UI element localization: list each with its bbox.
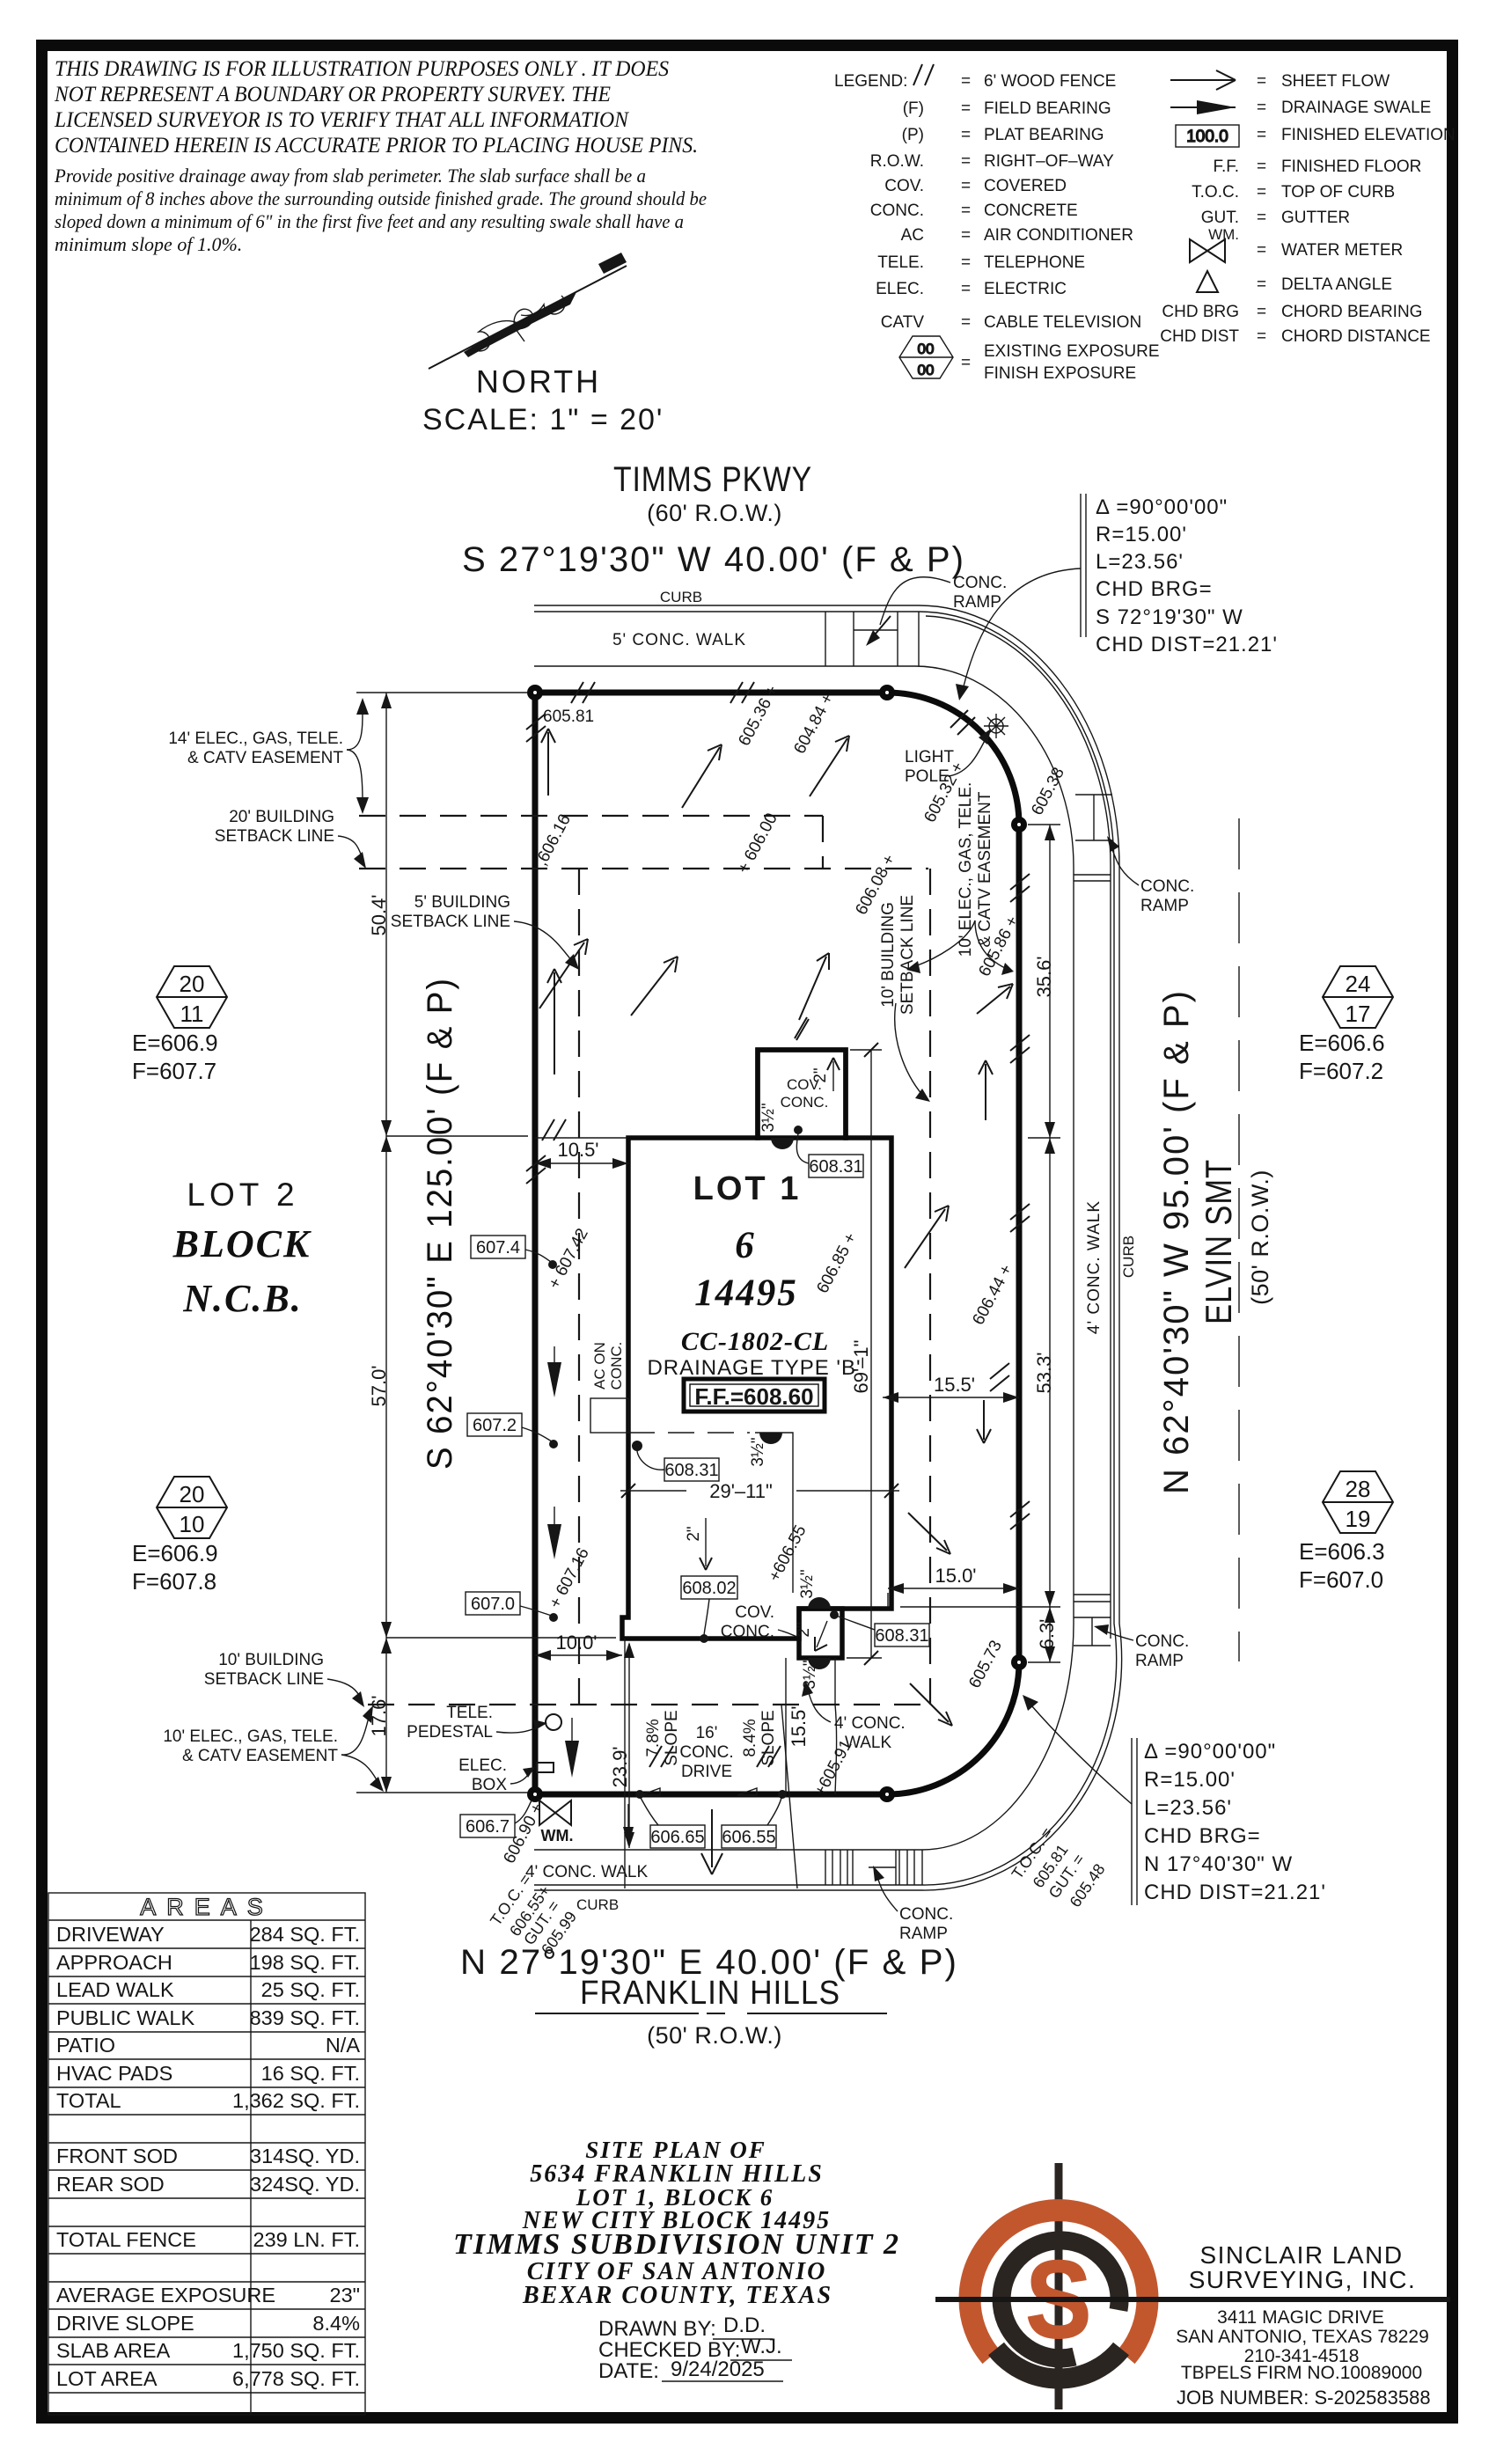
svg-text:4' CONC.: 4' CONC. bbox=[834, 1714, 906, 1733]
svg-text:F=607.7: F=607.7 bbox=[132, 1058, 216, 1084]
svg-text:=: = bbox=[961, 126, 971, 144]
svg-text:8.4%: 8.4% bbox=[312, 2312, 360, 2335]
svg-text:16 SQ. FT.: 16 SQ. FT. bbox=[261, 2062, 360, 2085]
svg-text:(P): (P) bbox=[902, 126, 924, 144]
svg-text:15.5': 15.5' bbox=[788, 1705, 810, 1747]
svg-text:SURVEYING, INC.: SURVEYING, INC. bbox=[1189, 2266, 1416, 2293]
svg-text:SLAB AREA: SLAB AREA bbox=[56, 2339, 171, 2362]
svg-text:CHD BRG: CHD BRG bbox=[1162, 303, 1239, 321]
svg-text:=: = bbox=[961, 99, 971, 118]
svg-text:=: = bbox=[1257, 183, 1266, 202]
svg-text:TOP OF CURB: TOP OF CURB bbox=[1281, 183, 1395, 202]
svg-text:DELTA ANGLE: DELTA ANGLE bbox=[1281, 275, 1392, 294]
svg-text:CATV: CATV bbox=[881, 313, 925, 332]
svg-text:CONC.: CONC. bbox=[781, 1094, 829, 1111]
svg-text:=: = bbox=[1257, 241, 1266, 260]
svg-text:WM.: WM. bbox=[541, 1827, 574, 1844]
svg-text:W.J.: W.J. bbox=[741, 2335, 782, 2358]
svg-text:10.0': 10.0' bbox=[555, 1632, 597, 1654]
svg-text:23.9': 23.9' bbox=[609, 1746, 631, 1787]
svg-text:PEDESTAL: PEDESTAL bbox=[407, 1723, 493, 1742]
svg-text:minimum of 8 inches above the: minimum of 8 inches above the surroundin… bbox=[55, 187, 707, 209]
svg-text:324SQ. YD.: 324SQ. YD. bbox=[250, 2173, 360, 2196]
svg-text:1,750 SQ. FT.: 1,750 SQ. FT. bbox=[232, 2339, 360, 2362]
svg-text:APPROACH: APPROACH bbox=[56, 1951, 172, 1974]
svg-text:3½": 3½" bbox=[798, 1569, 817, 1598]
svg-text:GUT.: GUT. bbox=[1201, 209, 1239, 227]
svg-text:69'–1": 69'–1" bbox=[850, 1340, 872, 1394]
svg-text:15.0': 15.0' bbox=[935, 1565, 976, 1587]
svg-text:3½": 3½" bbox=[801, 1660, 819, 1689]
svg-text:SLOPE: SLOPE bbox=[759, 1710, 778, 1765]
svg-text:607.2: 607.2 bbox=[473, 1416, 517, 1435]
svg-text:TOTAL: TOTAL bbox=[56, 2089, 121, 2112]
svg-text:RAMP: RAMP bbox=[953, 593, 1001, 612]
svg-text:SCALE: 1" = 20': SCALE: 1" = 20' bbox=[422, 403, 664, 436]
svg-text:(50' R.O.W.): (50' R.O.W.) bbox=[647, 2022, 782, 2049]
svg-text:LEAD WALK: LEAD WALK bbox=[56, 1978, 174, 2001]
svg-text:CONC.: CONC. bbox=[870, 202, 924, 220]
svg-text:SETBACK LINE: SETBACK LINE bbox=[215, 827, 334, 846]
svg-text:2": 2" bbox=[685, 1526, 703, 1541]
svg-text:CONC.: CONC. bbox=[1135, 1632, 1189, 1651]
svg-text:N 17°40'30" W: N 17°40'30" W bbox=[1144, 1852, 1293, 1876]
svg-text:608.02: 608.02 bbox=[682, 1579, 736, 1598]
svg-text:57.0': 57.0' bbox=[368, 1365, 390, 1406]
svg-text:CONC.: CONC. bbox=[679, 1743, 733, 1762]
svg-text:RAMP: RAMP bbox=[899, 1925, 948, 1943]
svg-text:TELE.: TELE. bbox=[446, 1704, 493, 1722]
svg-text:(50' R.O.W.): (50' R.O.W.) bbox=[1247, 1170, 1273, 1305]
svg-text:NOT REPRESENT A BOUNDARY OR PR: NOT REPRESENT A BOUNDARY OR PROPERTY SUR… bbox=[54, 81, 611, 106]
svg-text:=: = bbox=[961, 72, 971, 91]
svg-text:D.D.: D.D. bbox=[723, 2314, 766, 2337]
svg-text:CONCRETE: CONCRETE bbox=[984, 202, 1078, 220]
svg-text:DRAINAGE TYPE 'B': DRAINAGE TYPE 'B' bbox=[647, 1356, 861, 1380]
svg-text:=: = bbox=[1257, 327, 1266, 346]
svg-text:7.8%: 7.8% bbox=[644, 1719, 663, 1756]
svg-text:DRIVE SLOPE: DRIVE SLOPE bbox=[56, 2312, 194, 2335]
svg-text:JOB NUMBER: S-202583588: JOB NUMBER: S-202583588 bbox=[1177, 2387, 1431, 2409]
svg-text:17: 17 bbox=[1346, 1001, 1371, 1027]
svg-text:N 62°40'30" W 95.00' (F & P): N 62°40'30" W 95.00' (F & P) bbox=[1157, 989, 1196, 1494]
svg-text:EXISTING EXPOSURE: EXISTING EXPOSURE bbox=[984, 342, 1160, 361]
svg-text:10' BUILDING: 10' BUILDING bbox=[879, 902, 898, 1008]
svg-text:607.0: 607.0 bbox=[471, 1595, 515, 1614]
svg-text:F.F.=608.60: F.F.=608.60 bbox=[694, 1383, 813, 1410]
svg-text:PLAT BEARING: PLAT BEARING bbox=[984, 126, 1104, 144]
svg-text:5' CONC. WALK: 5' CONC. WALK bbox=[612, 631, 746, 649]
svg-text:=: = bbox=[1257, 303, 1266, 321]
svg-text:SINCLAIR LAND: SINCLAIR LAND bbox=[1199, 2241, 1403, 2269]
svg-text:198 SQ. FT.: 198 SQ. FT. bbox=[250, 1951, 360, 1974]
svg-text:606.7: 606.7 bbox=[466, 1817, 510, 1837]
svg-text:=: = bbox=[961, 226, 971, 245]
svg-text:ELEC.: ELEC. bbox=[458, 1756, 507, 1775]
svg-text:4' CONC. WALK: 4' CONC. WALK bbox=[1085, 1200, 1104, 1334]
svg-text:3½": 3½" bbox=[749, 1437, 767, 1466]
svg-text:5' BUILDING: 5' BUILDING bbox=[414, 893, 510, 912]
svg-text:CHORD DISTANCE: CHORD DISTANCE bbox=[1281, 327, 1431, 346]
svg-text:LICENSED SURVEYOR IS TO VERIFY: LICENSED SURVEYOR IS TO VERIFY THAT ALL … bbox=[54, 106, 630, 132]
svg-text:CONC.: CONC. bbox=[1140, 877, 1194, 896]
svg-text:2": 2" bbox=[811, 1067, 830, 1082]
svg-text:CONC.: CONC. bbox=[721, 1623, 774, 1641]
svg-text:DRAINAGE SWALE: DRAINAGE SWALE bbox=[1281, 99, 1431, 117]
svg-text:F=607.8: F=607.8 bbox=[132, 1568, 216, 1595]
svg-text:23": 23" bbox=[330, 2284, 360, 2306]
svg-text:SETBACK LINE: SETBACK LINE bbox=[204, 1670, 324, 1689]
svg-text:SETBACK LINE: SETBACK LINE bbox=[898, 895, 917, 1015]
svg-text:TELE.: TELE. bbox=[877, 253, 924, 272]
svg-text:POLE: POLE bbox=[905, 767, 950, 786]
svg-text:T.O.C.: T.O.C. bbox=[1192, 183, 1239, 202]
svg-text:6.3': 6.3' bbox=[1036, 1619, 1058, 1650]
svg-text:FRONT SOD: FRONT SOD bbox=[56, 2145, 178, 2167]
svg-text:608.31: 608.31 bbox=[809, 1157, 862, 1177]
svg-text:606.65: 606.65 bbox=[650, 1828, 704, 1847]
svg-text:(F): (F) bbox=[903, 99, 924, 118]
svg-text:50.4': 50.4' bbox=[368, 894, 390, 935]
svg-text:100.0: 100.0 bbox=[1186, 128, 1228, 146]
svg-text:LOT 2: LOT 2 bbox=[187, 1177, 298, 1213]
svg-text:CONC.: CONC. bbox=[953, 574, 1007, 592]
svg-text:=: = bbox=[1257, 158, 1266, 176]
svg-text:F=607.2: F=607.2 bbox=[1299, 1058, 1383, 1084]
svg-text:608.31: 608.31 bbox=[875, 1626, 928, 1646]
svg-text:SAN ANTONIO, TEXAS 78229: SAN ANTONIO, TEXAS 78229 bbox=[1176, 2327, 1429, 2347]
svg-text:AREAS: AREAS bbox=[140, 1894, 274, 1920]
svg-text:=: = bbox=[961, 202, 971, 220]
svg-text:16': 16' bbox=[696, 1724, 718, 1742]
svg-text:239 LN. FT.: 239 LN. FT. bbox=[253, 2228, 360, 2251]
svg-text:=: = bbox=[1257, 275, 1266, 294]
svg-text:N.C.B.: N.C.B. bbox=[182, 1277, 302, 1320]
svg-text:Δ =90°00'00": Δ =90°00'00" bbox=[1144, 1740, 1276, 1764]
svg-text:THIS DRAWING IS FOR ILLUSTRATI: THIS DRAWING IS FOR ILLUSTRATION PURPOSE… bbox=[55, 55, 669, 81]
svg-text:AIR CONDITIONER: AIR CONDITIONER bbox=[984, 226, 1133, 245]
svg-text:(60' R.O.W.): (60' R.O.W.) bbox=[647, 500, 782, 526]
svg-text:COVERED: COVERED bbox=[984, 177, 1067, 195]
svg-text:6,778 SQ. FT.: 6,778 SQ. FT. bbox=[232, 2367, 360, 2390]
svg-text:11: 11 bbox=[180, 1001, 204, 1027]
svg-text:RAMP: RAMP bbox=[1140, 897, 1189, 915]
svg-text:COV.: COV. bbox=[735, 1603, 774, 1622]
svg-text:20: 20 bbox=[180, 1481, 205, 1507]
svg-text:GUTTER: GUTTER bbox=[1281, 209, 1350, 227]
svg-text:TIMMS SUBDIVISION UNIT 2: TIMMS SUBDIVISION UNIT 2 bbox=[453, 2228, 900, 2261]
svg-text:SLOPE: SLOPE bbox=[663, 1710, 681, 1765]
svg-text:FRANKLIN HILLS: FRANKLIN HILLS bbox=[580, 1975, 840, 2012]
svg-text:608.31: 608.31 bbox=[664, 1461, 718, 1480]
svg-text:=: = bbox=[961, 152, 971, 171]
svg-text:4' CONC. WALK: 4' CONC. WALK bbox=[525, 1863, 648, 1881]
svg-text:CURB: CURB bbox=[660, 589, 702, 605]
svg-text:AC: AC bbox=[901, 226, 924, 245]
svg-text:BEXAR COUNTY, TEXAS: BEXAR COUNTY, TEXAS bbox=[522, 2282, 832, 2309]
svg-text:17.6': 17.6' bbox=[368, 1695, 390, 1736]
svg-text:DRAWN BY:: DRAWN BY: bbox=[598, 2317, 716, 2341]
svg-text:E=606.9: E=606.9 bbox=[132, 1540, 218, 1566]
svg-text:28: 28 bbox=[1346, 1476, 1371, 1502]
svg-text:LOT 1: LOT 1 bbox=[693, 1170, 802, 1207]
svg-text:E=606.9: E=606.9 bbox=[132, 1030, 218, 1056]
svg-text:RAMP: RAMP bbox=[1135, 1652, 1184, 1670]
svg-text:CONTAINED HEREIN IS ACCURATE P: CONTAINED HEREIN IS ACCURATE PRIOR TO PL… bbox=[55, 132, 698, 158]
svg-text:DRIVEWAY: DRIVEWAY bbox=[56, 1923, 165, 1946]
svg-text:10.5': 10.5' bbox=[557, 1139, 598, 1161]
svg-text:FINISHED FLOOR: FINISHED FLOOR bbox=[1281, 158, 1421, 176]
svg-text:Δ =90°00'00": Δ =90°00'00" bbox=[1096, 495, 1228, 519]
svg-text:2": 2" bbox=[795, 1622, 813, 1637]
svg-text:RIGHT–OF–WAY: RIGHT–OF–WAY bbox=[984, 152, 1114, 171]
svg-text:9/24/2025: 9/24/2025 bbox=[671, 2358, 765, 2381]
svg-text:24: 24 bbox=[1346, 971, 1371, 997]
svg-text:CURB: CURB bbox=[576, 1896, 619, 1913]
svg-text:COV.: COV. bbox=[884, 177, 924, 195]
svg-text:FINISHED ELEVATION: FINISHED ELEVATION bbox=[1281, 126, 1456, 144]
svg-text:CHD BRG=: CHD BRG= bbox=[1096, 577, 1213, 601]
svg-text:LEGEND:: LEGEND: bbox=[834, 72, 907, 91]
svg-text:10' ELEC., GAS, TELE.: 10' ELEC., GAS, TELE. bbox=[957, 782, 975, 957]
svg-text:=: = bbox=[961, 313, 971, 332]
svg-text:PUBLIC WALK: PUBLIC WALK bbox=[56, 2006, 194, 2029]
svg-text:CC-1802-CL: CC-1802-CL bbox=[681, 1327, 829, 1356]
svg-text:TBPELS FIRM NO.10089000: TBPELS FIRM NO.10089000 bbox=[1181, 2363, 1422, 2383]
svg-text:N/A: N/A bbox=[326, 2034, 361, 2057]
svg-text:L=23.56': L=23.56' bbox=[1144, 1796, 1232, 1820]
svg-text:AC ON: AC ON bbox=[591, 1342, 608, 1390]
svg-text:DRIVE: DRIVE bbox=[681, 1763, 732, 1781]
svg-text:minimum slope of 1.0%.: minimum slope of 1.0%. bbox=[55, 233, 242, 255]
svg-text:E=606.6: E=606.6 bbox=[1299, 1030, 1385, 1056]
svg-text:29'–11": 29'–11" bbox=[709, 1480, 773, 1502]
svg-text:R.O.W.: R.O.W. bbox=[870, 152, 924, 171]
svg-text:Provide positive drainage away: Provide positive drainage away from slab… bbox=[54, 165, 646, 187]
svg-text:607.4: 607.4 bbox=[476, 1238, 520, 1258]
svg-text:=: = bbox=[961, 177, 971, 195]
svg-text:14' ELEC., GAS, TELE.: 14' ELEC., GAS, TELE. bbox=[168, 730, 343, 748]
svg-text:284 SQ. FT.: 284 SQ. FT. bbox=[250, 1923, 360, 1946]
svg-text:LOT AREA: LOT AREA bbox=[56, 2367, 158, 2390]
svg-text:NORTH: NORTH bbox=[476, 363, 601, 400]
svg-text:CONC.: CONC. bbox=[899, 1905, 953, 1924]
svg-text:DATE:: DATE: bbox=[598, 2359, 659, 2383]
svg-text:HVAC PADS: HVAC PADS bbox=[56, 2062, 172, 2085]
svg-text:=: = bbox=[961, 280, 971, 298]
svg-text:10' BUILDING: 10' BUILDING bbox=[218, 1651, 324, 1669]
svg-text:CONC.: CONC. bbox=[608, 1342, 625, 1390]
svg-text:CHD DIST: CHD DIST bbox=[1160, 327, 1239, 346]
svg-text:TIMMS PKWY: TIMMS PKWY bbox=[613, 460, 812, 499]
svg-text:TELEPHONE: TELEPHONE bbox=[984, 253, 1085, 272]
svg-text:3411 MAGIC DRIVE: 3411 MAGIC DRIVE bbox=[1217, 2307, 1384, 2328]
svg-text:10: 10 bbox=[180, 1511, 205, 1537]
svg-text:8.4%: 8.4% bbox=[741, 1719, 759, 1756]
svg-text:00: 00 bbox=[918, 341, 935, 357]
svg-text:BLOCK: BLOCK bbox=[172, 1222, 312, 1265]
svg-text:605.81: 605.81 bbox=[543, 708, 594, 726]
svg-text:SHEET FLOW: SHEET FLOW bbox=[1281, 72, 1390, 91]
svg-text:sloped down a minimum of 6" in: sloped down a minimum of 6" in the first… bbox=[55, 210, 684, 232]
svg-text:=: = bbox=[1257, 209, 1266, 227]
svg-text:REAR SOD: REAR SOD bbox=[56, 2173, 165, 2196]
svg-text:CHD DIST=21.21': CHD DIST=21.21' bbox=[1144, 1881, 1326, 1904]
svg-text:S 62°40'30" E 125.00' (F & P: S 62°40'30" E 125.00' (F & P) bbox=[421, 977, 459, 1470]
svg-text:ELVIN SMT: ELVIN SMT bbox=[1198, 1159, 1239, 1324]
svg-text:CABLE TELEVISION: CABLE TELEVISION bbox=[984, 313, 1141, 332]
svg-text:3½": 3½" bbox=[759, 1103, 778, 1132]
svg-text:314SQ. YD.: 314SQ. YD. bbox=[250, 2145, 360, 2167]
svg-text:LIGHT: LIGHT bbox=[905, 748, 954, 766]
svg-text:20' BUILDING: 20' BUILDING bbox=[229, 808, 334, 826]
svg-text:CHD BRG=: CHD BRG= bbox=[1144, 1824, 1261, 1848]
svg-text:=: = bbox=[1257, 99, 1266, 117]
svg-text:& CATV EASEMENT: & CATV EASEMENT bbox=[182, 1747, 338, 1765]
svg-text:6' WOOD FENCE: 6' WOOD FENCE bbox=[984, 72, 1116, 91]
svg-text:E=606.3: E=606.3 bbox=[1299, 1538, 1385, 1565]
svg-text:35.6': 35.6' bbox=[1033, 956, 1055, 997]
svg-text:ELEC.: ELEC. bbox=[876, 280, 924, 298]
svg-text:TOTAL FENCE: TOTAL FENCE bbox=[56, 2228, 196, 2251]
svg-text:CURB: CURB bbox=[1120, 1236, 1137, 1278]
svg-text:19: 19 bbox=[1346, 1506, 1371, 1532]
svg-text:AVERAGE EXPOSURE: AVERAGE EXPOSURE bbox=[56, 2284, 275, 2306]
svg-text:606.55: 606.55 bbox=[722, 1828, 775, 1847]
svg-text:& CATV EASEMENT: & CATV EASEMENT bbox=[187, 749, 343, 767]
svg-text:=: = bbox=[961, 354, 971, 372]
svg-text:CHD DIST=21.21': CHD DIST=21.21' bbox=[1096, 633, 1278, 656]
svg-text:ELECTRIC: ELECTRIC bbox=[984, 280, 1067, 298]
svg-text:SITE PLAN OF: SITE PLAN OF bbox=[585, 2137, 766, 2163]
svg-text:=: = bbox=[1257, 126, 1266, 144]
svg-text:WATER METER: WATER METER bbox=[1281, 241, 1403, 260]
svg-text:15.5': 15.5' bbox=[934, 1374, 975, 1396]
svg-text:20: 20 bbox=[180, 971, 205, 997]
svg-text:SETBACK LINE: SETBACK LINE bbox=[391, 913, 510, 931]
svg-text:1,362 SQ. FT.: 1,362 SQ. FT. bbox=[232, 2089, 360, 2112]
svg-text:PATIO: PATIO bbox=[56, 2034, 115, 2057]
svg-text:F=607.0: F=607.0 bbox=[1299, 1566, 1383, 1593]
svg-text:FIELD BEARING: FIELD BEARING bbox=[984, 99, 1111, 118]
svg-text:14495: 14495 bbox=[694, 1272, 798, 1314]
svg-text:& CATV EASEMENT: & CATV EASEMENT bbox=[976, 791, 994, 947]
svg-text:F.F.: F.F. bbox=[1213, 158, 1239, 176]
svg-text:BOX: BOX bbox=[472, 1776, 507, 1794]
svg-text:25 SQ. FT.: 25 SQ. FT. bbox=[261, 1978, 360, 2001]
svg-text:L=23.56': L=23.56' bbox=[1096, 550, 1184, 574]
svg-text:10' ELEC., GAS, TELE.: 10' ELEC., GAS, TELE. bbox=[163, 1727, 338, 1746]
svg-text:=: = bbox=[961, 253, 971, 272]
svg-text:839 SQ. FT.: 839 SQ. FT. bbox=[250, 2006, 360, 2029]
svg-text:53.3': 53.3' bbox=[1033, 1352, 1055, 1393]
svg-text:S 27°19'30" W 40.00' (F & P): S 27°19'30" W 40.00' (F & P) bbox=[462, 540, 965, 579]
svg-text:R=15.00': R=15.00' bbox=[1144, 1768, 1236, 1792]
svg-text:00: 00 bbox=[918, 362, 935, 378]
svg-text:CHORD BEARING: CHORD BEARING bbox=[1281, 303, 1422, 321]
svg-text:S 72°19'30" W: S 72°19'30" W bbox=[1096, 605, 1243, 629]
svg-text:R=15.00': R=15.00' bbox=[1096, 523, 1187, 546]
svg-text:=: = bbox=[1257, 72, 1266, 91]
svg-text:6: 6 bbox=[735, 1225, 754, 1266]
svg-text:FINISH EXPOSURE: FINISH EXPOSURE bbox=[984, 364, 1136, 383]
